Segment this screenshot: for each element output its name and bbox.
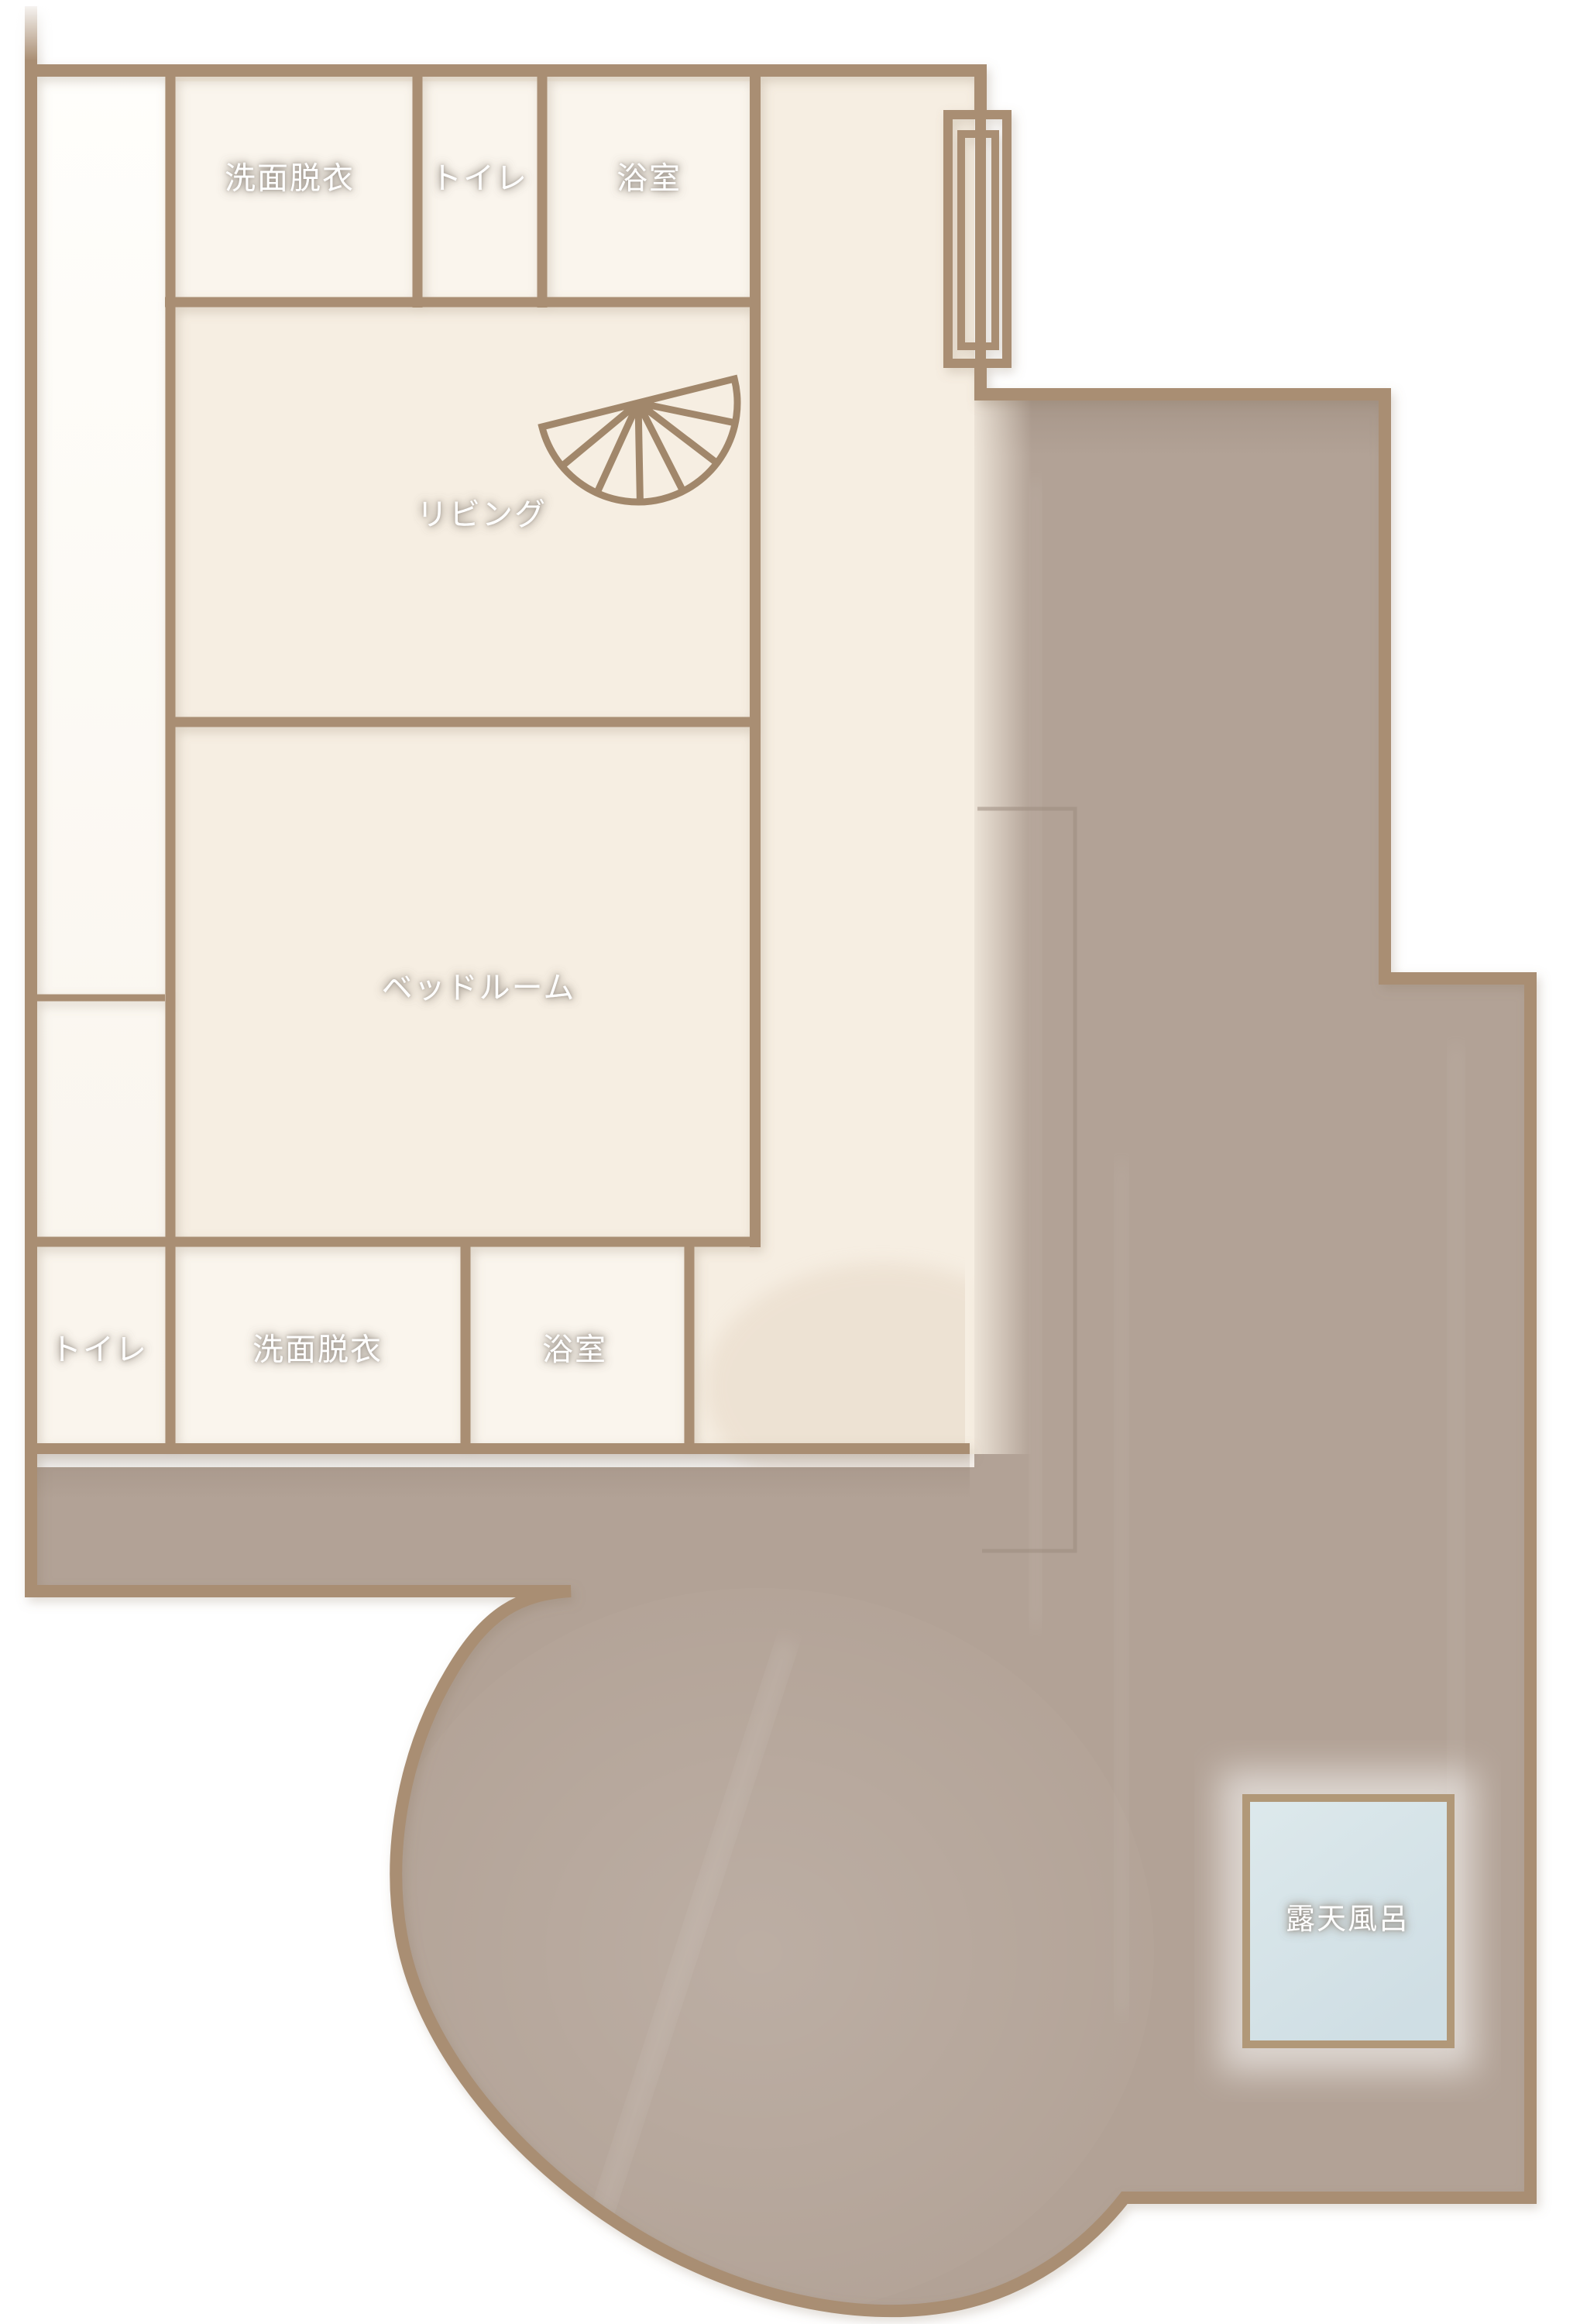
- label-bath-top: 浴室: [617, 161, 682, 196]
- deck-streak: [1115, 1162, 1128, 2014]
- floor-deck-fade: [965, 401, 1032, 1454]
- floorplan-canvas: 洗面脱衣 トイレ 浴室 リビング ベッドルーム トイレ 洗面脱衣 浴室 露天風呂: [0, 0, 1580, 2324]
- label-living: リビング: [417, 497, 547, 532]
- label-toilet-bottom: トイレ: [50, 1332, 148, 1367]
- floorplan-svg: 洗面脱衣 トイレ 浴室 リビング ベッドルーム トイレ 洗面脱衣 浴室 露天風呂: [0, 0, 1580, 2324]
- label-washroom-top: 洗面脱衣: [225, 161, 355, 196]
- building-floors: [37, 77, 1061, 1511]
- label-toilet-top: トイレ: [431, 161, 528, 196]
- label-washroom-bottom: 洗面脱衣: [252, 1332, 383, 1367]
- band-top-shadow: [37, 1454, 970, 1499]
- deck-streak: [1030, 480, 1041, 1627]
- label-bath-bottom: 浴室: [542, 1332, 607, 1367]
- label-bedroom: ベッドルーム: [382, 971, 576, 1006]
- terrace-top-shadow: [974, 401, 1385, 456]
- label-open-air-bath: 露天風呂: [1286, 1903, 1410, 1936]
- stub-fade: [14, 0, 54, 60]
